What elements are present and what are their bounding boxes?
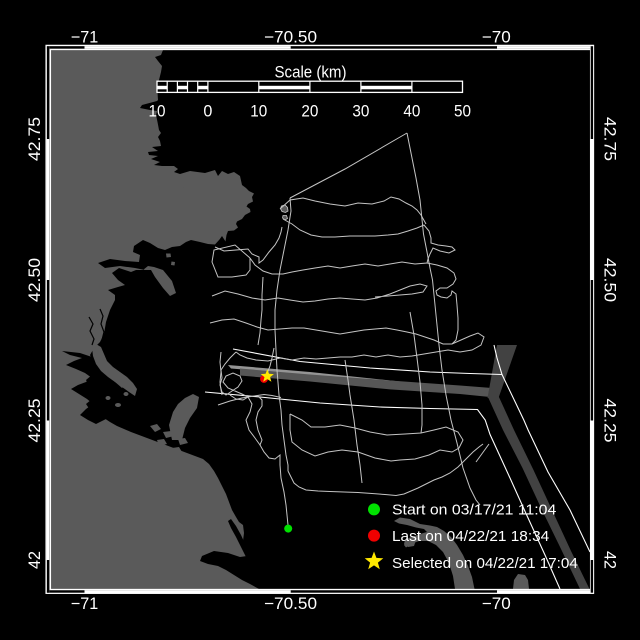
svg-text:−70.50: −70.50	[264, 28, 317, 46]
svg-text:−71: −71	[71, 28, 99, 46]
svg-text:10: 10	[149, 103, 166, 121]
svg-text:42.25: 42.25	[26, 399, 44, 443]
svg-text:40: 40	[403, 103, 420, 121]
svg-text:Selected on 04/22/21 17:04: Selected on 04/22/21 17:04	[392, 555, 578, 572]
svg-text:42.75: 42.75	[601, 117, 619, 161]
svg-text:0: 0	[203, 103, 212, 121]
svg-text:50: 50	[454, 103, 471, 121]
svg-text:−70: −70	[482, 595, 511, 613]
svg-text:42.50: 42.50	[601, 258, 619, 302]
svg-text:20: 20	[301, 103, 318, 121]
svg-text:42.25: 42.25	[601, 399, 619, 443]
svg-text:−71: −71	[71, 595, 99, 613]
svg-text:Scale (km): Scale (km)	[275, 64, 347, 82]
svg-text:Start on 03/17/21 11:04: Start on 03/17/21 11:04	[392, 501, 556, 518]
svg-text:42.75: 42.75	[26, 117, 44, 161]
svg-text:42: 42	[26, 551, 44, 569]
svg-text:Last on 04/22/21 18:34: Last on 04/22/21 18:34	[392, 528, 549, 545]
svg-text:−70: −70	[482, 28, 511, 46]
svg-text:30: 30	[352, 103, 369, 121]
svg-text:42.50: 42.50	[26, 258, 44, 302]
svg-text:42: 42	[601, 551, 619, 569]
svg-text:10: 10	[250, 103, 267, 121]
svg-text:−70.50: −70.50	[264, 595, 317, 613]
